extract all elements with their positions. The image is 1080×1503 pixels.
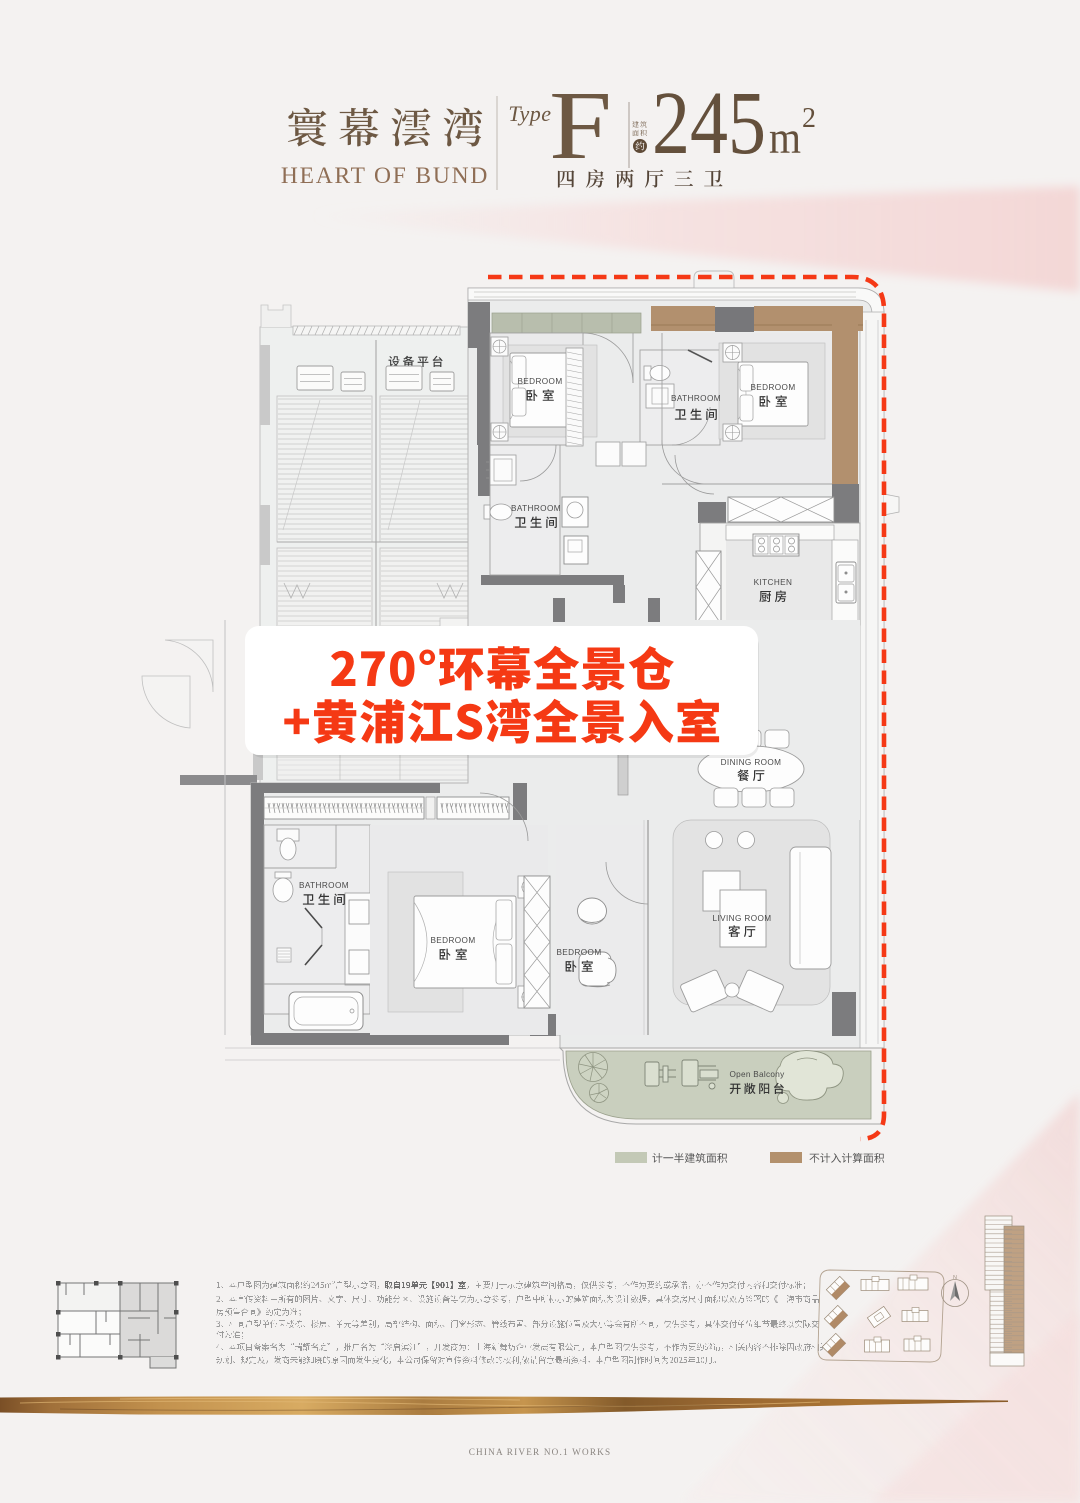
svg-text:N: N [953, 1275, 957, 1281]
svg-text:LIVING ROOM: LIVING ROOM [713, 914, 772, 923]
svg-text:BEDROOM: BEDROOM [750, 383, 795, 392]
svg-text:BATHROOM: BATHROOM [511, 504, 561, 513]
svg-text:DINING ROOM: DINING ROOM [721, 758, 782, 767]
svg-text:245: 245 [652, 74, 766, 173]
svg-text:BATHROOM: BATHROOM [671, 394, 721, 403]
svg-text:BEDROOM: BEDROOM [556, 948, 601, 957]
svg-text:BATHROOM: BATHROOM [299, 881, 349, 890]
svg-text:m: m [769, 112, 801, 163]
svg-text:Type: Type [508, 101, 551, 126]
svg-text:HEART OF BUND: HEART OF BUND [281, 163, 489, 189]
svg-text:CHINA RIVER NO.1 WORKS: CHINA RIVER NO.1 WORKS [469, 1447, 612, 1457]
svg-text:KITCHEN: KITCHEN [754, 578, 793, 587]
svg-text:BEDROOM: BEDROOM [517, 377, 562, 386]
svg-text:2: 2 [802, 103, 816, 134]
svg-text:F: F [549, 72, 612, 179]
svg-text:BEDROOM: BEDROOM [430, 936, 475, 945]
svg-text:Open Balcony: Open Balcony [729, 1070, 785, 1079]
